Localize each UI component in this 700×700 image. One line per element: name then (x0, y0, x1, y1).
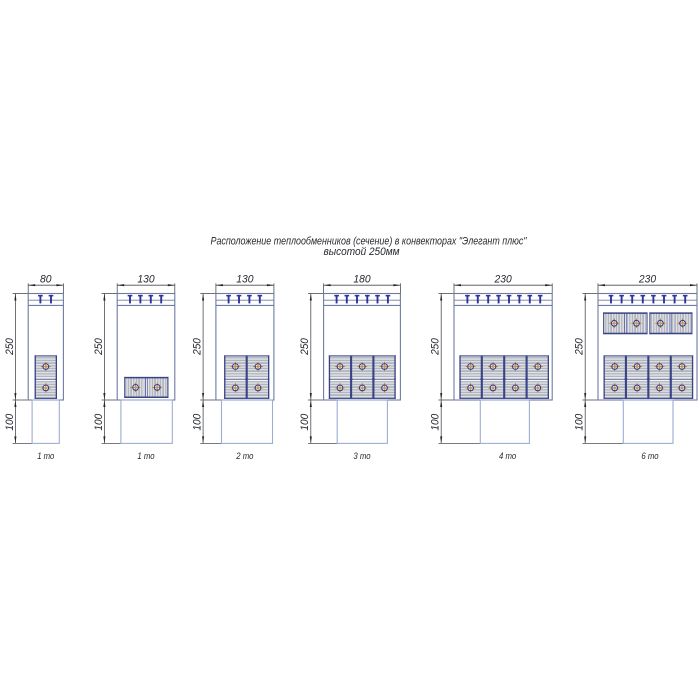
svg-text:250: 250 (4, 337, 16, 355)
svg-text:100: 100 (430, 413, 442, 430)
svg-text:100: 100 (574, 413, 586, 430)
svg-text:1 то: 1 то (137, 451, 155, 462)
svg-text:3 то: 3 то (353, 451, 371, 462)
svg-text:250: 250 (192, 337, 204, 355)
svg-text:высотой 250мм: высотой 250мм (324, 246, 401, 258)
svg-text:80: 80 (40, 274, 52, 286)
svg-text:100: 100 (192, 413, 204, 430)
svg-text:230: 230 (494, 274, 513, 286)
svg-text:6 то: 6 то (641, 451, 659, 462)
svg-text:230: 230 (638, 274, 657, 286)
svg-text:180: 180 (353, 274, 371, 286)
svg-text:2 то: 2 то (235, 451, 254, 462)
svg-text:130: 130 (137, 274, 155, 286)
svg-text:250: 250 (430, 337, 442, 355)
svg-text:130: 130 (236, 274, 254, 286)
svg-text:250: 250 (574, 337, 586, 355)
svg-text:100: 100 (93, 413, 105, 430)
svg-text:100: 100 (299, 413, 311, 430)
svg-text:250: 250 (93, 337, 105, 355)
svg-text:1 то: 1 то (37, 451, 55, 462)
svg-text:100: 100 (4, 413, 16, 430)
svg-text:250: 250 (299, 337, 311, 355)
svg-text:4 то: 4 то (499, 451, 517, 462)
